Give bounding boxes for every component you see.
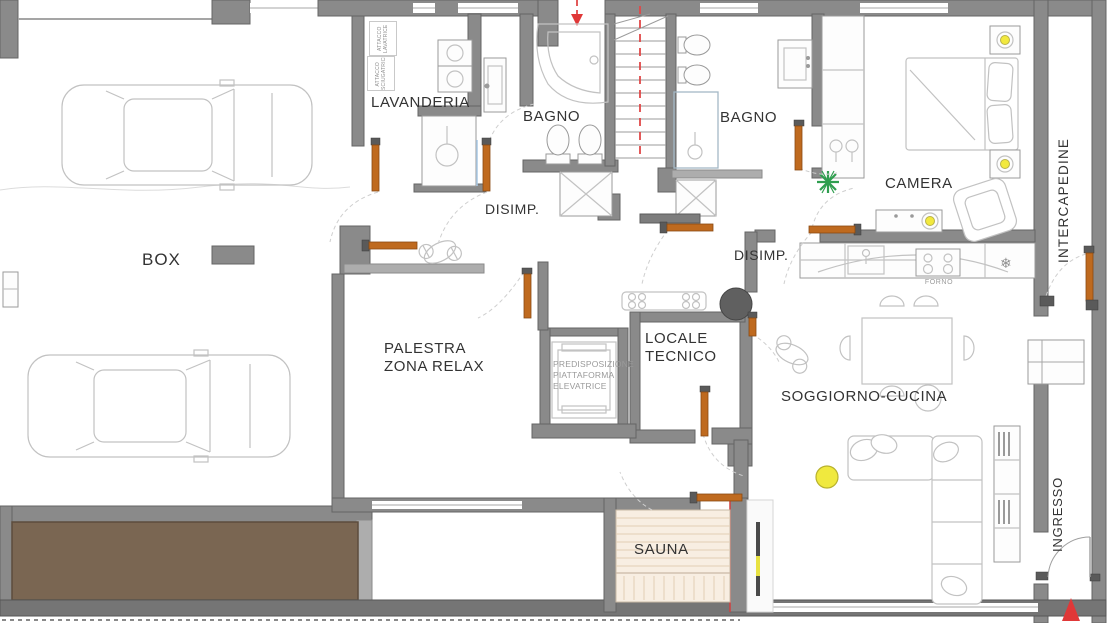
window-right [1028,340,1084,384]
stairs-down-arrow-icon [571,0,583,26]
elevator-note-1: PREDISPOSIZIONE [553,360,634,369]
elevator-note-3: ELEVATRICE [553,382,607,391]
room-label-locale-2: TECNICO [645,349,717,366]
pillar [212,246,254,264]
boiler-icon [720,288,752,320]
room-label-bagno-2: BAGNO [720,110,777,127]
room-label-camera: CAMERA [885,176,953,193]
bathroom-sink-icon [778,40,812,88]
washer-connection-note: ATTACCO LAVATRICE [369,21,397,56]
weight-bench-icon [622,292,706,310]
coffee-table-icon [816,466,838,488]
bidet-icon [578,125,602,164]
room-label-disimpegno-2: DISIMP. [734,248,789,263]
bathtub-icon [537,24,608,103]
room-label-ingresso: INGRESSO [1051,452,1065,552]
room-label-box: BOX [142,251,181,270]
oven-label: FORNO [917,279,961,287]
nightstand-icon [990,26,1020,54]
shower-icon [674,92,718,168]
room-label-palestra-1: PALESTRA [384,341,466,358]
bidet-icon [678,65,710,85]
shaft-box [676,180,716,216]
laundry-sink-icon [484,58,506,112]
floor-plan-drawing: ❄ [0,0,1110,623]
room-label-bagno-1: BAGNO [523,109,580,126]
toilet-icon [546,125,570,164]
toilet-icon [678,35,710,55]
stairs [614,6,668,158]
nightstand-icon [990,150,1020,178]
water-heater-closet [422,116,477,186]
room-label-intercapedine: INTERCAPEDINE [1057,108,1072,263]
sofa-icon [847,432,982,604]
floor-plan: ❄ [0,0,1110,623]
hob-icon [916,249,960,276]
snowflake-icon: ❄ [1000,256,1012,272]
bed-icon [906,58,1018,150]
car-icon [28,350,290,462]
wardrobe-icon [822,16,864,178]
room-label-disimpegno-1: DISIMP. [485,202,540,217]
elevator-note-2: PIATTAFORMA [553,371,614,380]
dresser-icon [876,210,942,232]
room-label-palestra-2: ZONA RELAX [384,359,484,376]
washer-dryer-icon [438,40,472,92]
exercise-machine-icon [769,333,816,375]
room-label-lavanderia: LAVANDERIA [371,95,470,112]
hall-console [640,214,700,223]
tv-icon [747,500,773,612]
dryer-connection-note: ATTACCO ASCIUGATRICE [367,56,395,91]
room-label-sauna: SAUNA [634,542,689,559]
room-label-soggiorno: SOGGIORNO-CUCINA [781,389,947,406]
entrance-door [1036,537,1100,581]
shaft-box [560,172,612,216]
room-label-locale-1: LOCALE [645,331,708,348]
bookshelf-icon [994,426,1020,562]
car-icon [62,80,312,190]
